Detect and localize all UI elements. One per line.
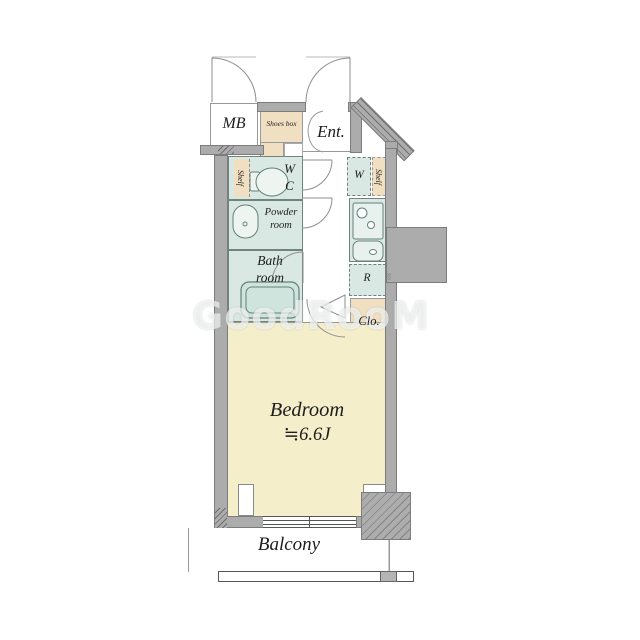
- powder-door-swing-icon: [302, 198, 332, 228]
- wc-shelf-label: Shelf: [235, 161, 245, 195]
- kitchen-dim-label: 555: [386, 266, 392, 286]
- washer-label: W: [349, 168, 369, 182]
- floor-plan: GoodRooM MB Shoes box Ent. WC Shelf Powd…: [0, 0, 640, 640]
- washer-shelf-label: Shelf: [373, 160, 383, 194]
- bedroom-label: Bedroom ≒6.6J: [236, 398, 378, 447]
- kitchen-sink-icon: [353, 241, 383, 261]
- bath-room-label: Bath room: [247, 253, 293, 287]
- closet-label: Clo.: [353, 314, 385, 330]
- mb-label: MB: [212, 114, 256, 134]
- bedroom-name: Bedroom: [236, 398, 378, 424]
- bedroom-size: ≒6.6J: [236, 424, 378, 447]
- powder-sink-icon: [233, 205, 258, 238]
- entrance-door-swing-icon: [306, 57, 350, 102]
- powder-room-label: Powder room: [258, 206, 304, 232]
- entrance-label: Ent.: [312, 121, 350, 142]
- mb-door-swing-icon: [212, 57, 256, 102]
- watermark: GoodRooM: [192, 294, 432, 338]
- wc-label: WC: [281, 161, 298, 195]
- balcony-label: Balcony: [239, 533, 339, 557]
- shoes-box-label: Shoes box: [260, 119, 303, 128]
- stove-icon: [353, 203, 383, 239]
- wc-door-swing-icon: [302, 160, 332, 190]
- fridge-label: R: [357, 271, 377, 285]
